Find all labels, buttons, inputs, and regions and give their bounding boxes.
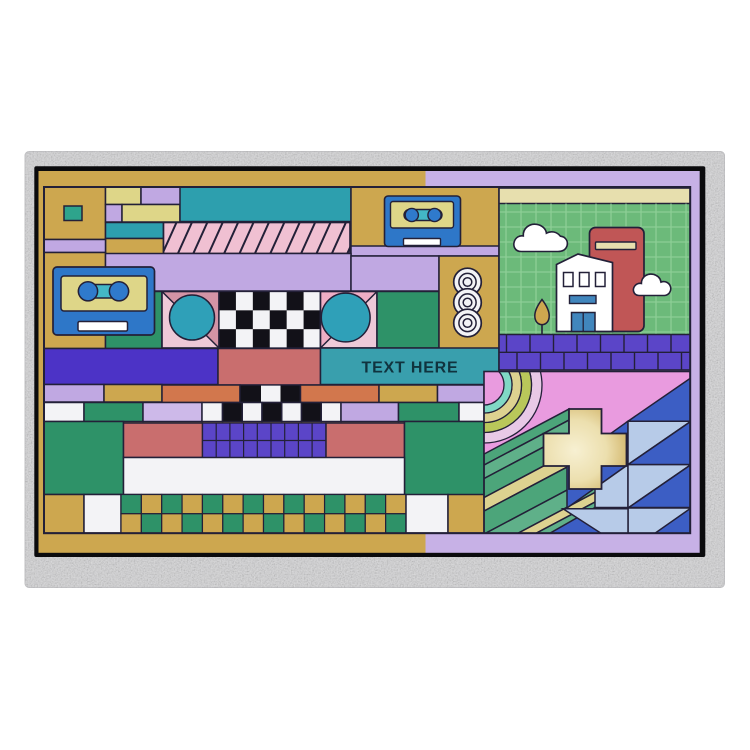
svg-text:TEXT HERE: TEXT HERE bbox=[362, 360, 459, 377]
